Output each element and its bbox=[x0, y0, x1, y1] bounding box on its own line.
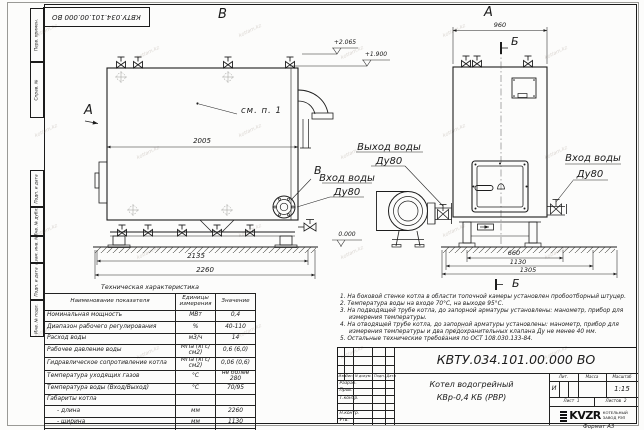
view-a-base bbox=[453, 217, 547, 247]
view-b-label: В bbox=[218, 8, 227, 21]
sig-prov: Пров. bbox=[340, 389, 353, 393]
left-stamp-perv-primen: Перв. примен. bbox=[30, 8, 44, 62]
left-stamp-podp-data-2: Подп. и дата bbox=[30, 263, 44, 300]
cell-value bbox=[216, 395, 256, 406]
doc-number-cell: КВТУ.034.101.00.000 ВО bbox=[394, 348, 638, 373]
outlet-valve bbox=[435, 203, 452, 224]
cell-unit: МВт bbox=[176, 311, 216, 322]
sheet-label: Лист bbox=[564, 398, 575, 403]
pipe-inlet-right-dn: Ду80 bbox=[577, 170, 603, 180]
cell-unit: мм bbox=[176, 406, 216, 417]
cell-name: - ширина bbox=[45, 417, 176, 428]
cut-marker-label: Б bbox=[511, 36, 519, 47]
elevation-zero: 0.000 bbox=[338, 232, 355, 238]
spec-header-unit: Единицы измерения bbox=[176, 294, 216, 311]
sheet-cell: Лист 1 bbox=[549, 399, 594, 403]
left-stamp-label: Подп. и дата bbox=[35, 174, 40, 203]
dim-2135: 2135 bbox=[187, 253, 205, 260]
table-row: Температура воды (Вход/Выход)°С70/95 bbox=[45, 383, 256, 394]
note-item: 2. Температура воды на входе 70°С, на вы… bbox=[340, 301, 636, 308]
cell-unit: мм bbox=[176, 417, 216, 428]
col-list: Лист bbox=[345, 375, 354, 379]
cell-value: 70/95 bbox=[216, 383, 256, 394]
table-row: Расход водым3/ч14 bbox=[45, 333, 256, 344]
control-panel bbox=[512, 78, 536, 98]
dim-2005: 2005 bbox=[193, 138, 211, 145]
note-item: 5. Остальные технические требования по О… bbox=[340, 336, 636, 343]
spec-table-title: Техническая характеристика bbox=[101, 284, 199, 291]
kvzr-logo-text: KVZR bbox=[569, 409, 600, 422]
spec-table: Наименование показателя Единицы измерени… bbox=[44, 293, 256, 430]
table-row: - длинамм2260 bbox=[45, 406, 256, 417]
left-stamp-label: Взам. инв. № bbox=[35, 235, 40, 264]
cell-value: 40-110 bbox=[216, 322, 256, 333]
blower-fan bbox=[377, 192, 436, 248]
table-row: Рабочее давление водыМПа (кгс/см2)0,6 (6… bbox=[45, 345, 256, 358]
flue-elbow bbox=[298, 90, 333, 148]
view-a-label: А bbox=[484, 6, 493, 19]
left-stamp-vzam-inv: Взам. инв. № bbox=[30, 236, 44, 263]
cell-name: Габариты котла bbox=[45, 395, 176, 406]
cell-unit bbox=[176, 395, 216, 406]
cell-unit: % bbox=[176, 322, 216, 333]
see-note-annotation: см. п. 1 bbox=[241, 107, 282, 116]
table-row: Температура уходящих газов°Сне более 280 bbox=[45, 370, 256, 383]
sig-nkontr: Н.контр. bbox=[340, 412, 360, 416]
sheets-total: 2 bbox=[624, 398, 627, 403]
scale-value: 1:15 bbox=[606, 386, 638, 393]
top-corner-stamp: КВТУ.034.101.00.000 ВО bbox=[43, 7, 150, 27]
note-item: 4. На отводящей трубе котла, до запорной… bbox=[340, 322, 636, 336]
col-dokum: N докум. bbox=[355, 375, 372, 379]
cell-value: не более 280 bbox=[216, 370, 256, 383]
dim-660: 660 bbox=[508, 250, 520, 257]
elevation-top: +2.065 bbox=[334, 40, 356, 46]
cell-name: Номинальная мощность bbox=[45, 311, 176, 322]
note-item: 1. На боковой стенке котла в области топ… bbox=[340, 294, 636, 301]
top-corner-stamp-number: КВТУ.034.101.00.000 ВО bbox=[52, 13, 141, 21]
cell-name: - длина bbox=[45, 406, 176, 417]
cell-value: 0,06 (0,6) bbox=[216, 357, 256, 370]
sheets-cell: Листов 2 bbox=[594, 399, 638, 403]
format-label: Формат А3 bbox=[583, 424, 614, 430]
view-b-side-drawing bbox=[93, 57, 333, 253]
table-row: Габариты котла bbox=[45, 395, 256, 406]
cell-name: Диапазон рабочего регулирования bbox=[45, 322, 176, 333]
left-stamp-podp-data-1: Подп. и дата bbox=[30, 170, 44, 207]
kvzr-logo: KVZR КОТЕЛЬНЫЙ ЗАВОД РЭП bbox=[551, 407, 637, 424]
left-stamp-sprav-no: Справ. № bbox=[30, 62, 44, 118]
left-stamp-label: Подп. и дата bbox=[35, 267, 40, 296]
left-stamp-label: Справ. № bbox=[35, 80, 40, 101]
left-stamp-label: Инв. № дубл. bbox=[35, 207, 40, 236]
table-row: Гидравлическое сопротивление котлаМПа (к… bbox=[45, 357, 256, 370]
dim-2260: 2260 bbox=[196, 267, 214, 274]
pipe-outlet-dn: Ду80 bbox=[376, 157, 402, 167]
cell-name: Расход воды bbox=[45, 333, 176, 344]
technical-notes: 1. На боковой стенке котла в области топ… bbox=[340, 294, 636, 343]
sheets-label: Листов bbox=[606, 398, 622, 403]
view-b-dimensions bbox=[85, 48, 390, 279]
product-name-line2: КВр-0,4 КБ (РВР) bbox=[394, 394, 549, 402]
inlet-valve-right bbox=[547, 200, 567, 216]
col-data: Дата bbox=[387, 375, 396, 379]
table-row: Диапазон рабочего регулирования%40-110 bbox=[45, 322, 256, 333]
cell-name: Температура уходящих газов bbox=[45, 370, 176, 383]
cell-unit: МПа (кгс/см2) bbox=[176, 357, 216, 370]
left-stamp-inv-dubl: Инв. № дубл. bbox=[30, 207, 44, 236]
left-stamp-label: Инв. № подл. bbox=[35, 304, 40, 334]
view-a-front-drawing bbox=[377, 42, 618, 290]
cell-value: 14 bbox=[216, 333, 256, 344]
cell-value: 1130 bbox=[216, 417, 256, 428]
lit-value: И bbox=[549, 385, 559, 392]
elevation-mid: +1.900 bbox=[365, 52, 387, 58]
cell-value: 0,6 (6,0) bbox=[216, 345, 256, 358]
pipe-outlet-label: Выход воды bbox=[357, 143, 421, 153]
drawing-sheet: kotlam.kzkotlam.kzkotlam.kzkotlam.kzkotl… bbox=[0, 0, 644, 430]
spec-header-name: Наименование показателя bbox=[45, 294, 176, 311]
dim-960: 960 bbox=[494, 22, 506, 29]
cell-unit: °С bbox=[176, 370, 216, 383]
table-row: Номинальная мощностьМВт0,4 bbox=[45, 311, 256, 322]
col-podp: Подп. bbox=[374, 375, 385, 379]
pipe-inlet-left-dn: Ду80 bbox=[334, 188, 360, 198]
centermarks bbox=[115, 71, 234, 216]
kvzr-logo-sub2: ЗАВОД РЭП bbox=[603, 416, 628, 420]
cell-name: Рабочее давление воды bbox=[45, 345, 176, 358]
pipe-inlet-right-label: Вход воды bbox=[565, 154, 621, 164]
furnace-door bbox=[472, 161, 528, 212]
cell-unit: МПа (кгс/см2) bbox=[176, 345, 216, 358]
pipe-inlet-left-label: Вход воды bbox=[319, 174, 375, 184]
spec-header-value: Значение bbox=[216, 294, 256, 311]
note-item: 3. На подводящей трубе котла, до запорно… bbox=[340, 308, 636, 322]
cell-name: Температура воды (Вход/Выход) bbox=[45, 383, 176, 394]
section-view-label: Б bbox=[512, 278, 520, 289]
cell-value: 2260 bbox=[216, 406, 256, 417]
product-name-line1: Котел водогрейный bbox=[394, 381, 549, 389]
spec-header-row: Наименование показателя Единицы измерени… bbox=[45, 294, 256, 311]
cell-name: Гидравлическое сопротивление котла bbox=[45, 357, 176, 370]
kvzr-logo-icon bbox=[560, 410, 567, 422]
dim-1130: 1130 bbox=[510, 259, 527, 266]
cell-unit: м3/ч bbox=[176, 333, 216, 344]
sig-razrab: Разраб. bbox=[340, 382, 357, 386]
side-drain-valve bbox=[298, 220, 316, 232]
table-row: - ширинамм1130 bbox=[45, 417, 256, 428]
left-stamp-label: Перв. примен. bbox=[35, 19, 40, 51]
mass-label: Масса bbox=[578, 375, 606, 379]
lit-label: Лит. bbox=[549, 375, 578, 379]
sig-tkontr: Т.контр. bbox=[340, 397, 359, 401]
sheet-number: 1 bbox=[577, 398, 580, 403]
scale-label: Масштаб bbox=[606, 375, 638, 379]
view-arrow-label: А bbox=[84, 104, 93, 117]
left-stamp-inv-podl: Инв. № подл. bbox=[30, 300, 44, 337]
dim-1305: 1305 bbox=[520, 267, 537, 274]
cell-value: 0,4 bbox=[216, 311, 256, 322]
cell-unit: °С bbox=[176, 383, 216, 394]
sig-utv: Утв. bbox=[340, 419, 349, 423]
title-block: КВТУ.034.101.00.000 ВО Изм. Лист N докум… bbox=[337, 347, 637, 424]
